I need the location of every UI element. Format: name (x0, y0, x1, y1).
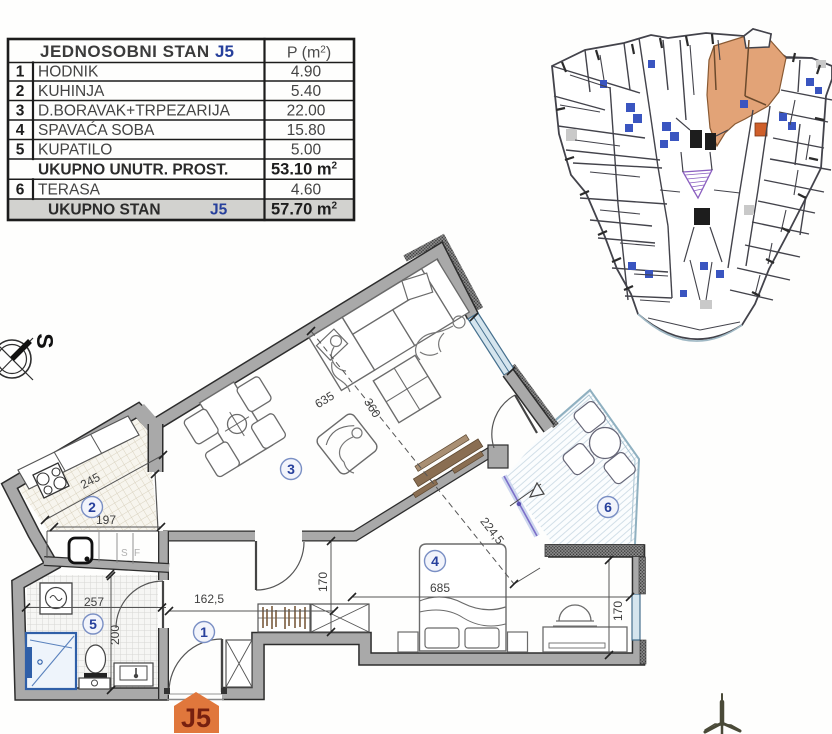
svg-text:F: F (134, 548, 140, 559)
svg-text:JEDNOSOBNI STAN: JEDNOSOBNI STAN (40, 42, 210, 61)
svg-text:2: 2 (16, 83, 25, 100)
svg-text:5: 5 (89, 616, 97, 632)
svg-text:S: S (32, 333, 58, 348)
svg-text:200: 200 (108, 625, 122, 645)
svg-text:TERASA: TERASA (38, 182, 101, 199)
svg-text:P (m2): P (m2) (287, 45, 331, 62)
svg-text:6: 6 (604, 499, 612, 515)
svg-text:162,5: 162,5 (194, 592, 224, 606)
svg-text:5.40: 5.40 (291, 83, 322, 100)
svg-text:UKUPNO UNUTR. PROST.: UKUPNO UNUTR. PROST. (38, 162, 228, 179)
svg-text:SPAVAĆA SOBA: SPAVAĆA SOBA (38, 122, 155, 139)
svg-text:4: 4 (16, 122, 25, 139)
svg-text:257: 257 (84, 595, 104, 609)
svg-text:170: 170 (611, 601, 625, 621)
svg-text:S: S (121, 548, 128, 559)
svg-text:5.00: 5.00 (291, 142, 322, 159)
svg-text:6: 6 (16, 182, 25, 199)
svg-text:KUHINJA: KUHINJA (38, 83, 105, 100)
svg-text:170: 170 (316, 572, 330, 592)
svg-text:UKUPNO STAN: UKUPNO STAN (48, 202, 161, 219)
svg-text:1: 1 (200, 624, 208, 640)
svg-text:224,5: 224,5 (477, 515, 507, 548)
svg-text:2: 2 (88, 499, 96, 515)
svg-text:J5: J5 (210, 202, 228, 219)
svg-text:HODNIK: HODNIK (38, 64, 99, 81)
svg-text:15.80: 15.80 (287, 122, 326, 139)
svg-text:4.60: 4.60 (291, 182, 322, 199)
svg-text:3: 3 (16, 103, 25, 120)
svg-text:1: 1 (16, 64, 25, 81)
svg-text:57.70 m2: 57.70 m2 (271, 201, 338, 219)
svg-text:635: 635 (312, 388, 337, 411)
svg-text:3: 3 (287, 461, 295, 477)
svg-text:685: 685 (430, 581, 450, 595)
svg-text:KUPATILO: KUPATILO (38, 142, 112, 159)
svg-text:53.10 m2: 53.10 m2 (271, 161, 338, 179)
svg-text:J5: J5 (181, 703, 211, 733)
svg-text:22.00: 22.00 (287, 103, 326, 120)
svg-text:4: 4 (431, 553, 439, 569)
svg-text:J5: J5 (215, 42, 234, 61)
svg-text:D.BORAVAK+TRPEZARIJA: D.BORAVAK+TRPEZARIJA (38, 103, 231, 120)
svg-text:5: 5 (16, 142, 25, 159)
svg-text:4.90: 4.90 (291, 64, 322, 81)
